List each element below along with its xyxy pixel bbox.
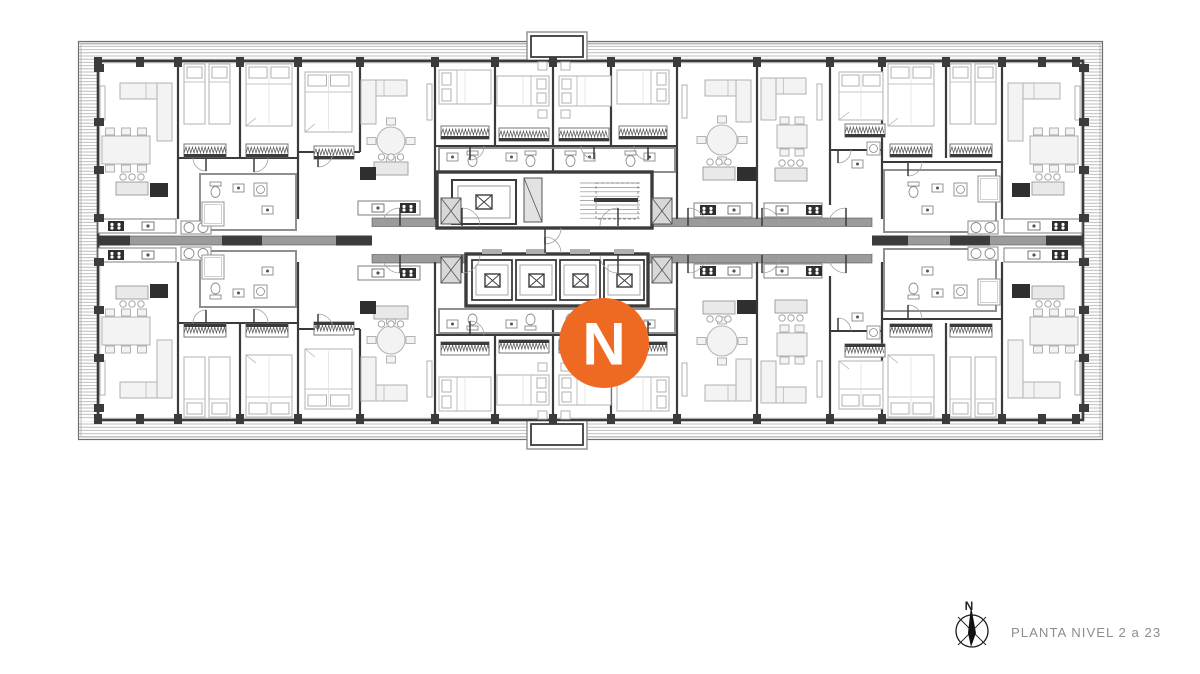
logo-letter: N — [582, 311, 625, 378]
plan-sheet: N N PLANTA NIVEL 2 a 23 — [0, 0, 1200, 674]
north-compass: N — [956, 599, 988, 647]
compass-north-label: N — [965, 599, 974, 613]
plan-title: PLANTA NIVEL 2 a 23 — [1011, 625, 1161, 640]
logo-n-badge: N — [559, 298, 649, 388]
plan-linework — [79, 32, 1103, 449]
floor-plan-drawing: N N PLANTA NIVEL 2 a 23 — [0, 0, 1200, 674]
